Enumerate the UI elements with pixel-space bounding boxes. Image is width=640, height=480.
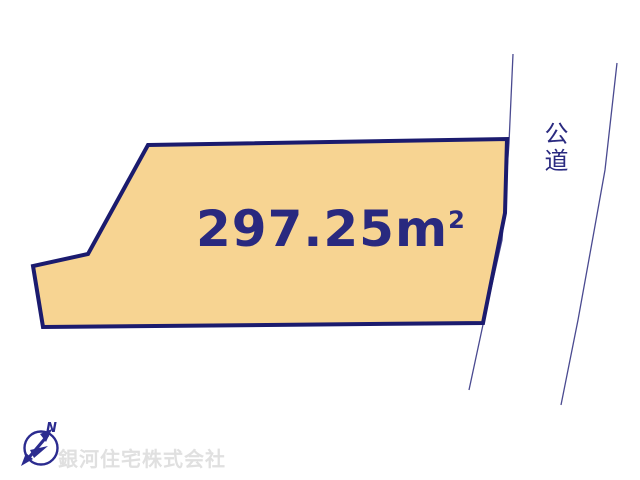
area-value: 297.25 — [196, 200, 395, 258]
north-label: N — [46, 421, 57, 436]
parcel-area-label: 297.25m2 — [196, 204, 465, 254]
road-label: 公道 — [542, 121, 566, 175]
area-unit: m — [395, 200, 448, 258]
company-watermark: 銀河住宅株式会社 — [58, 443, 226, 472]
lot-plan-diagram: 297.25m2 公道 N 銀河住宅株式会社 — [0, 0, 640, 480]
road-right-boundary-line — [561, 63, 617, 405]
area-unit-exponent: 2 — [448, 206, 465, 234]
